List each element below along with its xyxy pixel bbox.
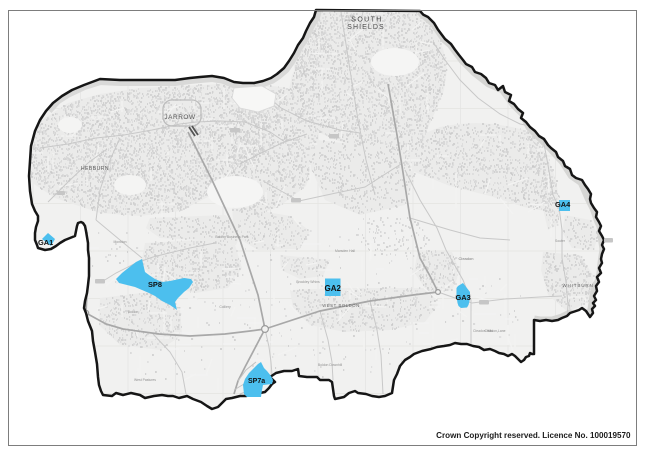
svg-text:Boldon Business Park: Boldon Business Park (215, 235, 248, 239)
svg-text:Boldon: Boldon (128, 310, 139, 314)
svg-text:GA3: GA3 (456, 293, 471, 302)
svg-text:SOUTH: SOUTH (351, 17, 383, 24)
svg-text:Cleadon Lane: Cleadon Lane (484, 329, 505, 333)
svg-text:GA1: GA1 (38, 238, 53, 247)
svg-text:Boldon Downhill: Boldon Downhill (318, 363, 343, 367)
svg-text:GA4: GA4 (555, 200, 571, 209)
svg-text:SP7a: SP7a (248, 378, 265, 385)
svg-text:SP8: SP8 (148, 280, 162, 289)
svg-text:Colliery: Colliery (219, 305, 231, 309)
svg-text:HEBBURN: HEBBURN (81, 166, 109, 172)
svg-text:Brockley Whins: Brockley Whins (296, 280, 320, 284)
svg-text:JARROW: JARROW (164, 114, 196, 121)
svg-text:WEST BOLDON: WEST BOLDON (322, 303, 359, 308)
svg-text:Monkton: Monkton (113, 240, 126, 244)
svg-text:SHIELDS: SHIELDS (347, 24, 385, 31)
svg-text:Souter: Souter (555, 239, 566, 243)
svg-text:Marsden Hall: Marsden Hall (335, 249, 355, 253)
svg-text:WHITBURN: WHITBURN (562, 283, 593, 288)
svg-text:GA2: GA2 (325, 284, 342, 293)
svg-text:West Pastures: West Pastures (134, 378, 156, 382)
svg-text:Crown Copyright reserved. Lice: Crown Copyright reserved. Licence No. 10… (436, 431, 631, 440)
svg-text:Cleadon: Cleadon (459, 256, 474, 261)
